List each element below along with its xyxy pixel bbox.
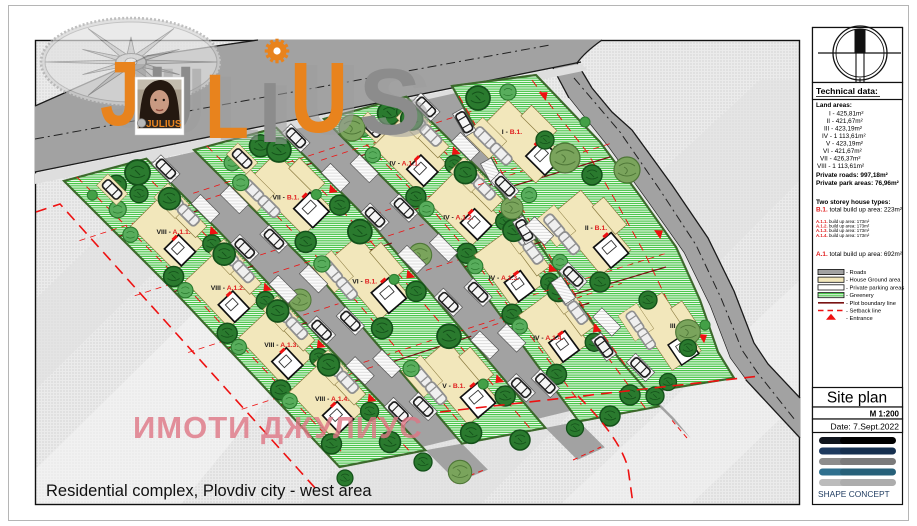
svg-text:SHAPE CONCEPT: SHAPE CONCEPT <box>818 489 890 499</box>
svg-text:- Roads: - Roads <box>846 270 866 276</box>
svg-text:- Private parking areas: - Private parking areas <box>846 285 904 291</box>
svg-text:VI - 421,67m²: VI - 421,67m² <box>823 148 862 155</box>
svg-text:IV - A.1.4.: IV - A.1.4. <box>533 335 563 342</box>
svg-text:- Greenery: - Greenery <box>846 293 874 299</box>
svg-text:B.1. total build up area: 223m: B.1. total build up area: 223m² <box>816 207 902 214</box>
svg-text:- Plot boundary line: - Plot boundary line <box>846 301 896 307</box>
svg-text:VIII - 1 113,61m²: VIII - 1 113,61m² <box>817 163 864 170</box>
svg-text:U: U <box>290 42 348 154</box>
svg-text:VI - B.1.: VI - B.1. <box>352 278 377 285</box>
svg-text:ИМОТИ ДЖУЛИУС: ИМОТИ ДЖУЛИУС <box>133 410 423 445</box>
svg-text:L: L <box>205 56 249 158</box>
svg-text:Private roads: 997,18m²: Private roads: 997,18m² <box>816 172 888 179</box>
svg-text:- House Ground area: - House Ground area <box>846 278 901 284</box>
svg-text:Private park areas: 76,96m²: Private park areas: 76,96m² <box>816 180 899 187</box>
svg-text:A.1. total build up area: 692m: A.1. total build up area: 692m² <box>816 251 902 258</box>
svg-text:Technical data:: Technical data: <box>816 86 878 96</box>
svg-text:M 1:200: M 1:200 <box>870 410 900 419</box>
svg-text:II - B.1.: II - B.1. <box>585 225 607 232</box>
svg-text:IV - 1 113,61m²: IV - 1 113,61m² <box>822 133 866 140</box>
svg-text:Site plan: Site plan <box>827 390 887 407</box>
svg-text:VIII - A.1.4.: VIII - A.1.4. <box>315 396 349 403</box>
svg-text:III - 423,19m²: III - 423,19m² <box>824 126 862 133</box>
svg-text:Residential complex, Plovdiv c: Residential complex, Plovdiv city - west… <box>46 482 372 500</box>
svg-text:VIII - A.1.3.: VIII - A.1.3. <box>264 342 298 349</box>
svg-text:J: J <box>100 43 140 145</box>
svg-text:IV - A.1.1.: IV - A.1.1. <box>389 161 419 168</box>
svg-text:V - B.1.: V - B.1. <box>442 383 465 390</box>
svg-text:Date: 7.Sept.2022: Date: 7.Sept.2022 <box>830 422 899 432</box>
svg-text:- Entrance: - Entrance <box>846 316 873 322</box>
svg-text:VIII - A.1.1.: VIII - A.1.1. <box>157 229 191 236</box>
svg-text:IV - A.1.2.: IV - A.1.2. <box>443 214 473 221</box>
svg-text:S: S <box>359 49 421 154</box>
svg-text:Two storey house types:: Two storey house types: <box>816 199 890 206</box>
svg-text:Land areas:: Land areas: <box>816 102 852 109</box>
svg-text:JULIUS: JULIUS <box>146 119 182 130</box>
svg-text:I - B.1.: I - B.1. <box>502 129 523 136</box>
svg-text:A.1.4. build up area: 173m²: A.1.4. build up area: 173m² <box>816 233 870 238</box>
svg-text:I: I <box>259 66 281 161</box>
svg-text:VII - 426,37m²: VII - 426,37m² <box>820 156 861 163</box>
svg-text:II - 421,67m²: II - 421,67m² <box>827 118 863 125</box>
svg-text:VII - B.1.: VII - B.1. <box>272 195 299 202</box>
svg-text:IV - A.1.3.: IV - A.1.3. <box>489 275 519 282</box>
svg-text:VIII - A.1.2.: VIII - A.1.2. <box>211 285 245 292</box>
svg-text:I - 425,81m²: I - 425,81m² <box>829 111 863 118</box>
svg-text:V - 423,19m²: V - 423,19m² <box>826 141 863 148</box>
svg-text:- Setback line: - Setback line <box>846 309 881 315</box>
